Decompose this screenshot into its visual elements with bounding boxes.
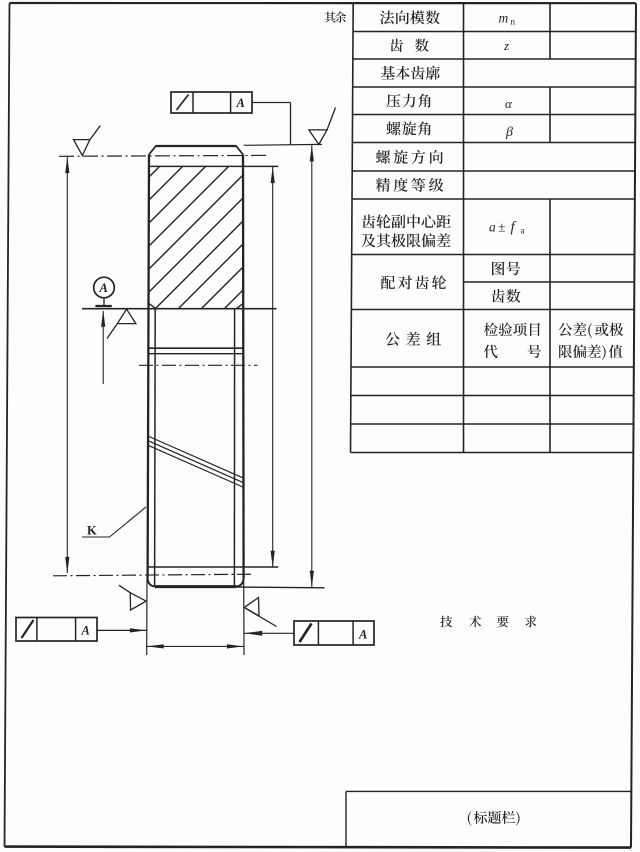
svg-text:n: n <box>511 17 516 27</box>
svg-text:α: α <box>505 96 513 111</box>
svg-text:±: ± <box>498 221 506 236</box>
svg-text:A: A <box>358 627 367 641</box>
svg-text:β: β <box>505 125 513 140</box>
svg-text:a: a <box>489 220 496 235</box>
svg-text:z: z <box>503 38 509 53</box>
svg-text:K: K <box>87 524 97 538</box>
svg-text:A: A <box>99 281 108 295</box>
svg-text:A: A <box>81 623 90 637</box>
svg-text:a: a <box>521 226 525 236</box>
svg-text:A: A <box>236 96 245 110</box>
svg-text:m: m <box>499 11 509 26</box>
